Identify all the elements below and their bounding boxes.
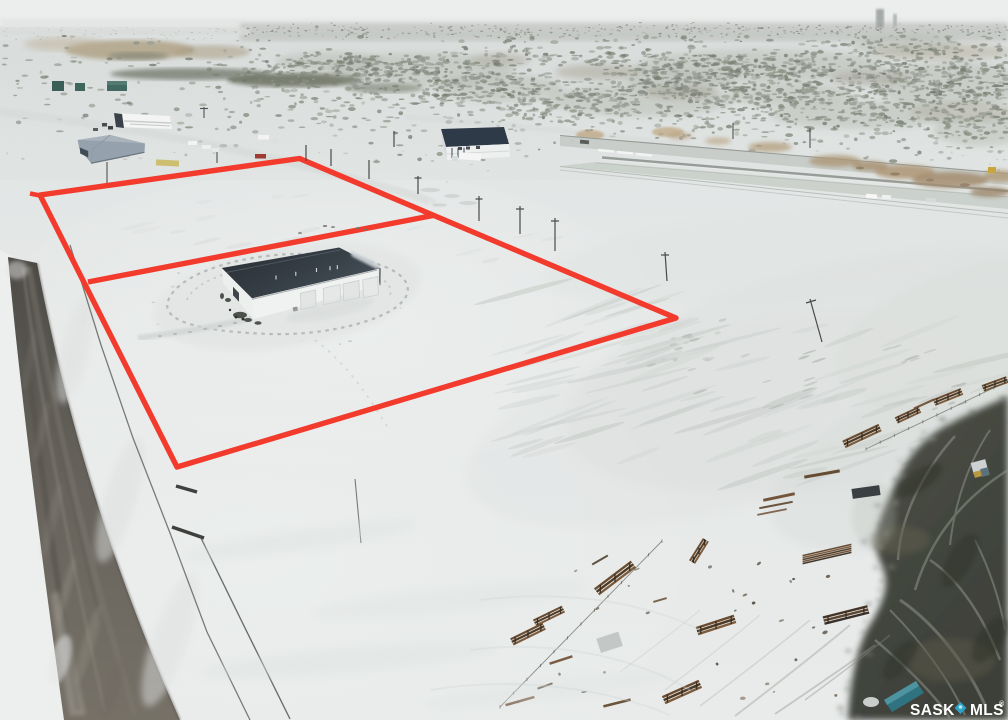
svg-text:®: ®	[999, 700, 1005, 708]
svg-text:SASK: SASK	[910, 702, 955, 719]
